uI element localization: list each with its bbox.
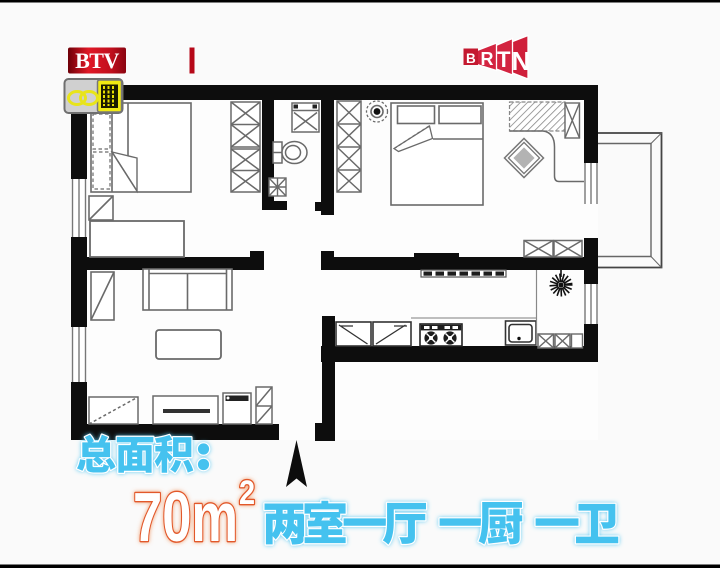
svg-text:T: T xyxy=(497,47,511,72)
svg-text:BTV: BTV xyxy=(75,48,119,73)
svg-text:2: 2 xyxy=(239,473,255,512)
svg-text:N: N xyxy=(512,46,531,76)
svg-text:B: B xyxy=(466,51,476,66)
svg-text:70m: 70m xyxy=(133,479,238,557)
svg-text:R: R xyxy=(481,49,494,69)
